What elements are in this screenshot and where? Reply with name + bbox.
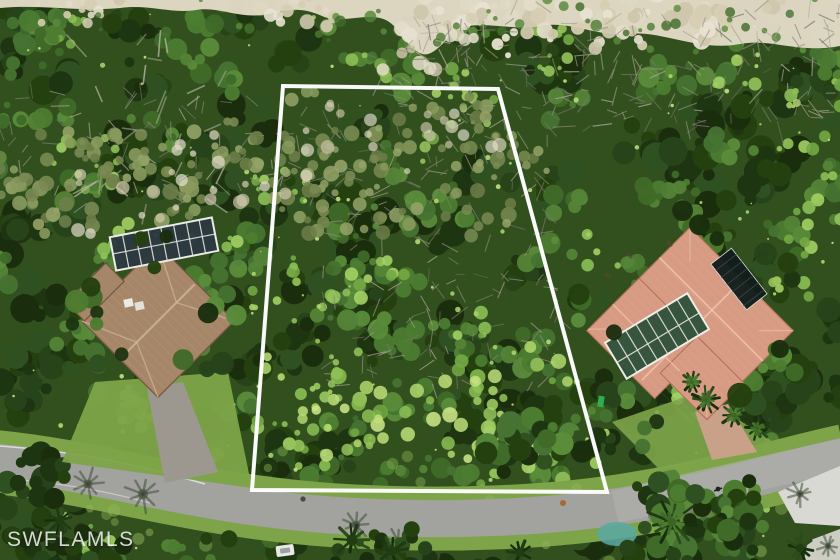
utility-cover	[560, 500, 566, 506]
aerial-photo-frame: SWFLAMLS	[0, 0, 840, 560]
mls-watermark: SWFLAMLS	[7, 528, 135, 552]
aerial-photo	[0, 0, 840, 560]
manhole-cover	[300, 496, 305, 501]
